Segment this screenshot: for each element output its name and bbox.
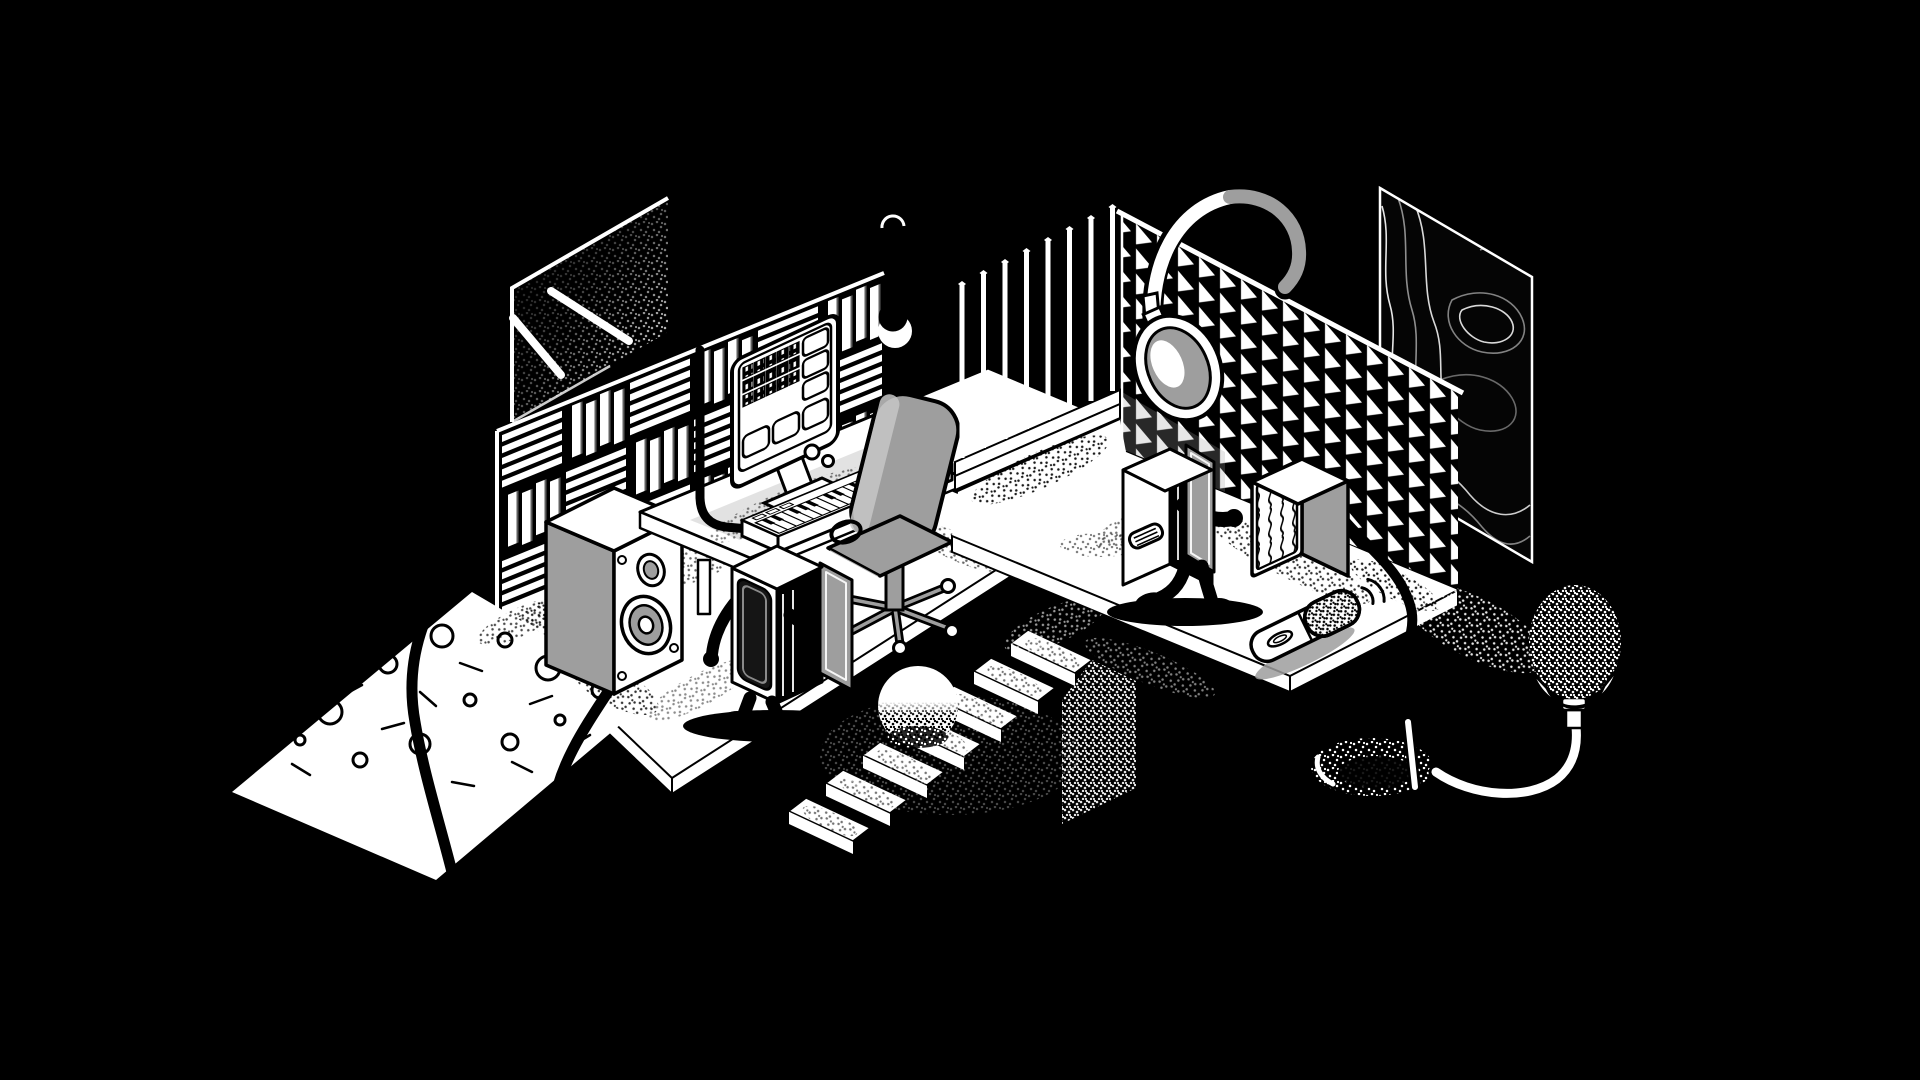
- illustration-stage: [0, 0, 1920, 1080]
- shadow: [1107, 598, 1263, 626]
- robot-door: [820, 563, 852, 690]
- studio-illustration: [0, 0, 1920, 1080]
- ball: [878, 666, 958, 748]
- desk-knob: [823, 456, 834, 467]
- desk-knob: [805, 445, 819, 459]
- desk-leg: [698, 560, 710, 614]
